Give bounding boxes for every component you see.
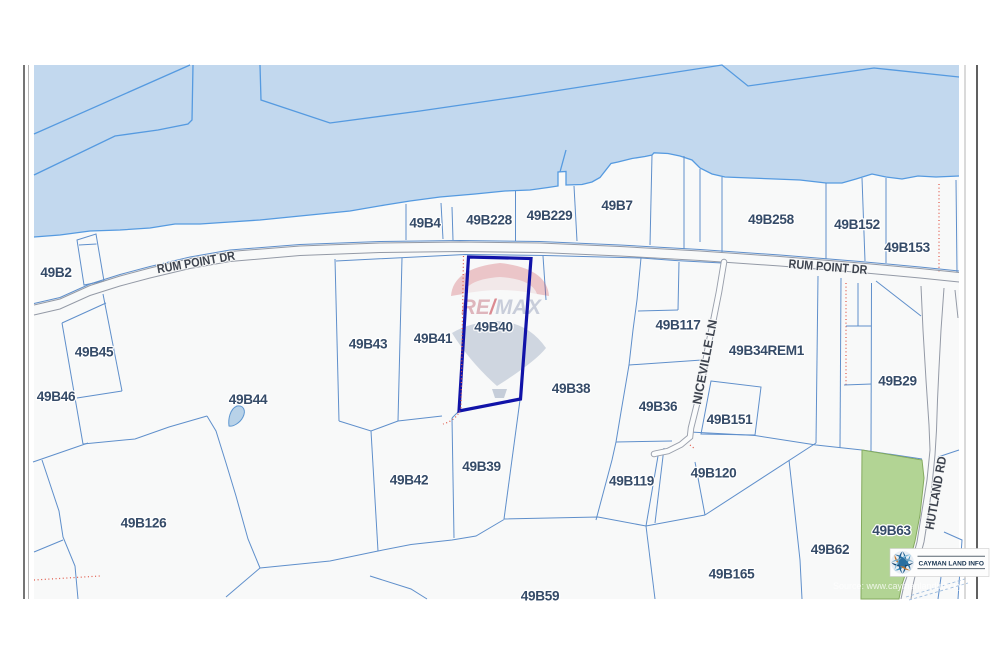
svg-text:49B228: 49B228 <box>466 213 513 228</box>
svg-text:49B42: 49B42 <box>390 473 429 488</box>
svg-text:49B39: 49B39 <box>462 459 501 474</box>
svg-text:49B36: 49B36 <box>639 399 678 414</box>
svg-text:49B151: 49B151 <box>707 412 754 427</box>
svg-text:CAYMAN LAND INFO: CAYMAN LAND INFO <box>919 561 985 567</box>
svg-text:49B165: 49B165 <box>709 567 756 582</box>
svg-text:49B59: 49B59 <box>521 589 560 604</box>
svg-text:49B40: 49B40 <box>474 320 513 335</box>
svg-text:49B45: 49B45 <box>75 345 114 360</box>
svg-text:49B4: 49B4 <box>409 216 441 231</box>
svg-text:49B119: 49B119 <box>609 474 655 489</box>
svg-text:49B29: 49B29 <box>878 374 917 389</box>
svg-text:49B62: 49B62 <box>811 542 850 557</box>
svg-text:49B2: 49B2 <box>40 265 72 280</box>
svg-text:49B41: 49B41 <box>414 331 453 346</box>
svg-text:49B43: 49B43 <box>349 337 388 352</box>
svg-text:Source: www.caymanlandinfo.ky: Source: www.caymanlandinfo.ky <box>833 581 963 591</box>
svg-text:49B46: 49B46 <box>37 389 76 404</box>
svg-text:RE/MAX: RE/MAX <box>461 296 543 319</box>
svg-text:49B152: 49B152 <box>834 217 881 232</box>
svg-text:49B44: 49B44 <box>229 392 268 407</box>
svg-text:49B117: 49B117 <box>655 318 700 333</box>
svg-text:49B63: 49B63 <box>872 523 911 538</box>
svg-text:49B34REM1: 49B34REM1 <box>729 343 805 358</box>
svg-text:49B120: 49B120 <box>691 466 737 481</box>
svg-text:49B153: 49B153 <box>884 240 931 255</box>
svg-text:49B38: 49B38 <box>552 381 591 396</box>
svg-text:49B126: 49B126 <box>121 516 168 531</box>
svg-text:49B258: 49B258 <box>748 212 795 227</box>
svg-text:49B7: 49B7 <box>601 198 632 213</box>
svg-text:49B229: 49B229 <box>527 208 574 223</box>
